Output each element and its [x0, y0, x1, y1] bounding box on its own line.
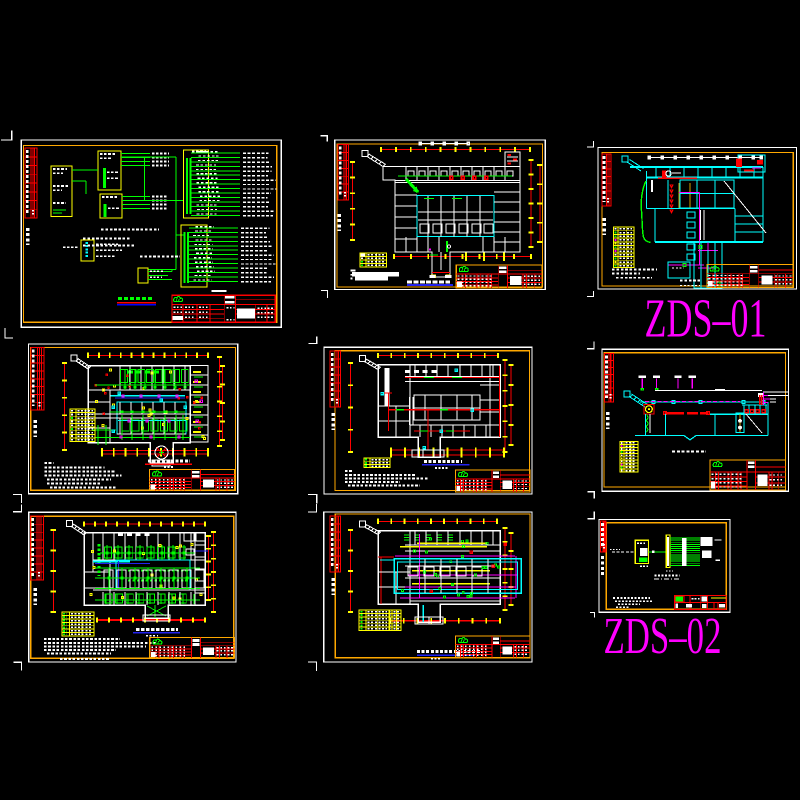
- svg-text:ZDS–01: ZDS–01: [645, 289, 767, 350]
- svg-text:ZDS–02: ZDS–02: [604, 608, 722, 665]
